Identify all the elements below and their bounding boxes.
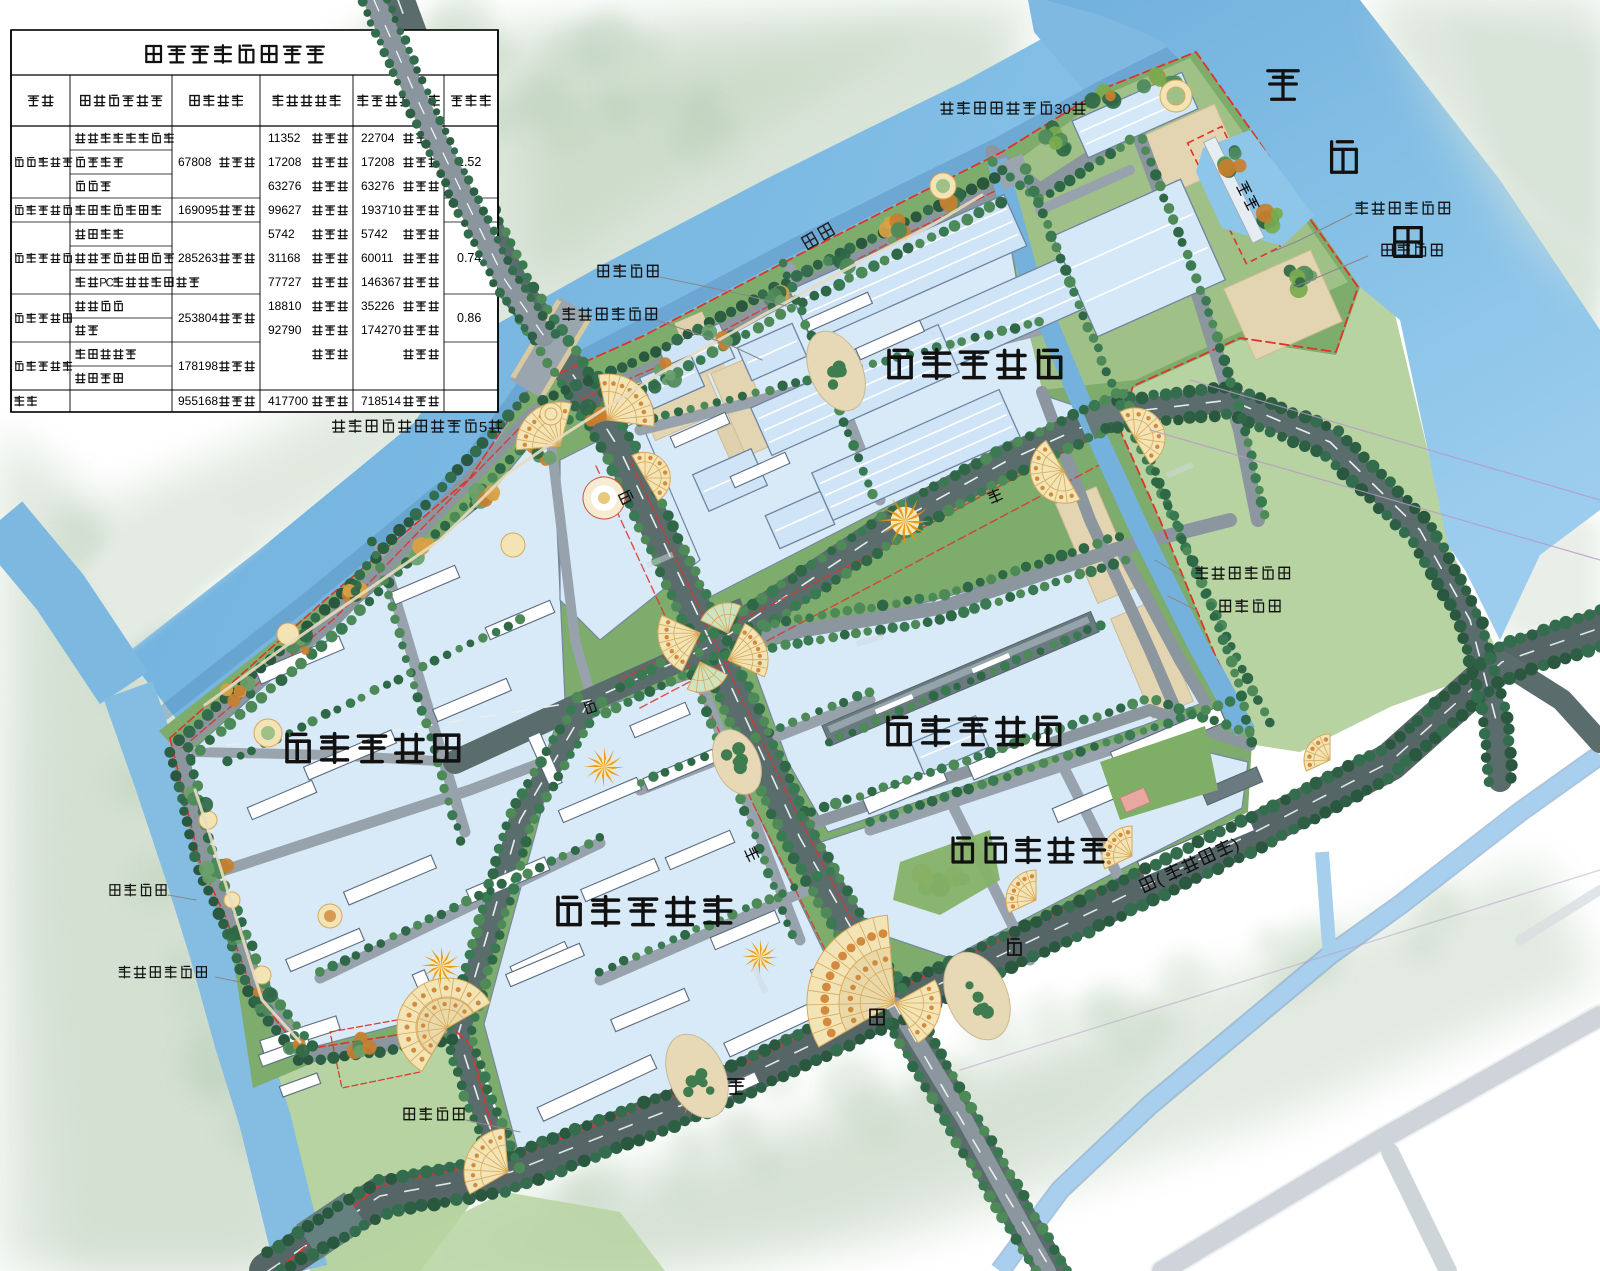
svg-text:3: 3 [1054,101,1062,118]
svg-text:253804: 253804 [178,311,218,325]
svg-text:285263: 285263 [178,251,218,265]
svg-text:63276: 63276 [361,179,395,193]
svg-text:17208: 17208 [361,155,395,169]
svg-text:169095: 169095 [178,203,218,217]
svg-text:67808: 67808 [178,155,212,169]
svg-text:18810: 18810 [268,299,302,313]
svg-text:174270: 174270 [361,323,401,337]
svg-text:178198: 178198 [178,359,218,373]
svg-text:35226: 35226 [361,299,395,313]
svg-text:0: 0 [1063,101,1071,118]
svg-text:17208: 17208 [268,155,302,169]
svg-text:C: C [106,278,114,290]
svg-text:718514: 718514 [361,394,401,408]
svg-text:5: 5 [479,419,487,436]
svg-text:0.86: 0.86 [457,311,481,325]
svg-text:92790: 92790 [268,323,302,337]
svg-text:60011: 60011 [361,251,394,265]
svg-text:11352: 11352 [268,131,301,145]
svg-text:22704: 22704 [361,131,395,145]
svg-text:77727: 77727 [268,275,302,289]
svg-text:99627: 99627 [268,203,302,217]
svg-text:146367: 146367 [361,275,401,289]
svg-text:5742: 5742 [361,227,388,241]
svg-text:5742: 5742 [268,227,295,241]
svg-text:63276: 63276 [268,179,302,193]
svg-text:417700: 417700 [268,394,308,408]
svg-text:193710: 193710 [361,203,401,217]
svg-text:955168: 955168 [178,394,218,408]
svg-text:31168: 31168 [268,251,301,265]
